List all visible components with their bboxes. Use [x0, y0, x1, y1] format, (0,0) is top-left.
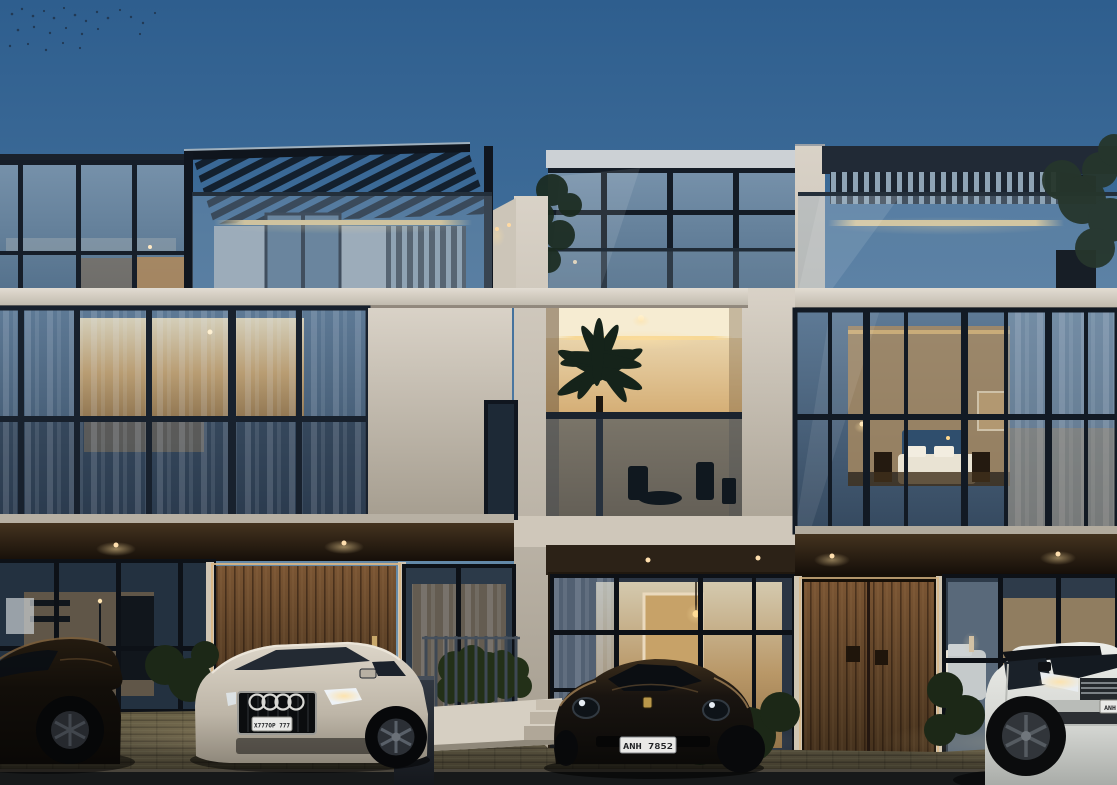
dark-sedan [0, 638, 123, 764]
bedroom-glazing-level [795, 310, 1117, 532]
door-split-line [867, 582, 870, 760]
canopy-fascia [0, 514, 514, 523]
bed-pillow [934, 446, 954, 457]
entry-canopy [0, 523, 514, 561]
audi-license-plate: X777OP 777 [252, 717, 292, 731]
headlight-spec [579, 700, 585, 706]
terrace-glass-balustrade [192, 196, 492, 292]
bedroom-floor [848, 472, 1010, 486]
bedroom-interior [848, 326, 1010, 486]
downlight-dot [495, 227, 499, 231]
soffit-downlight [646, 558, 651, 563]
road-strip [0, 772, 1117, 785]
soffit-downlight [756, 556, 761, 561]
curtain-warm-seep [1008, 428, 1117, 532]
curtain-texture [0, 308, 368, 520]
interior-wall-art [6, 598, 34, 634]
penthouse-roof-cap [546, 150, 796, 168]
canopy-downlight [830, 554, 835, 559]
rr-mirror [1038, 662, 1051, 671]
floor-lamp-glow [98, 599, 102, 603]
pergola-roof-terrace [184, 143, 493, 292]
rr-front-wheel [986, 696, 1066, 776]
scene-canvas: X777OP 777 ANH 7852 [0, 0, 1117, 785]
door-handle-plate [875, 650, 888, 665]
bedside-lamp [946, 436, 950, 440]
porsche-crest [643, 697, 652, 708]
dusk-townhouse-render: X777OP 777 ANH 7852 [0, 0, 1117, 785]
audi-suv: X777OP 777 [195, 642, 428, 768]
mid-floor-band [512, 516, 798, 547]
interior-lamp-dot [148, 245, 152, 249]
headlight-glow [326, 689, 362, 703]
downlight-dot [507, 223, 511, 227]
canopy-downlight [114, 543, 119, 548]
recessed-balcony [546, 306, 742, 520]
rr-grille [1080, 678, 1117, 700]
dim-interior-pane [78, 258, 134, 290]
rr-license-plate-text: ANH [1104, 704, 1116, 712]
rr-license-plate: ANH [1100, 700, 1117, 713]
porsche-headlight [703, 700, 729, 720]
downlight-halo [632, 315, 650, 327]
headlight-spec [709, 702, 715, 708]
audi-mirror [360, 669, 376, 678]
upper-fascia-band [795, 288, 1117, 310]
headlight-glow [1038, 674, 1082, 690]
left-middle-floor [0, 308, 516, 520]
porsche-wheel [717, 725, 765, 773]
interior-ceiling-sheen [6, 238, 176, 251]
balustrade-rail [548, 248, 795, 252]
porsche-wheel [554, 730, 578, 766]
canopy-downlight [1056, 552, 1061, 557]
door-handle-plate [846, 646, 860, 662]
canopy-downlight [342, 541, 347, 546]
pergola-post [184, 152, 193, 292]
porsche-license-plate-text: ANH 7852 [623, 742, 673, 751]
balcony-rail [546, 412, 742, 419]
narrow-window [486, 402, 516, 518]
porsche-license-plate: ANH 7852 [620, 737, 676, 753]
porsche-headlight [573, 698, 599, 718]
mid-entry-soffit [546, 545, 798, 575]
range-rover: ANH [985, 642, 1117, 785]
bed-pillow [906, 446, 926, 457]
terrace-balustrade-glass [548, 250, 795, 290]
audi-license-plate-text: X777OP 777 [254, 723, 290, 730]
terrace-rail [192, 192, 492, 196]
canopy-fascia [795, 526, 1117, 534]
audi-front-wheel [365, 706, 427, 768]
lit-interior-pane [136, 257, 184, 290]
wall-art [978, 392, 1006, 430]
